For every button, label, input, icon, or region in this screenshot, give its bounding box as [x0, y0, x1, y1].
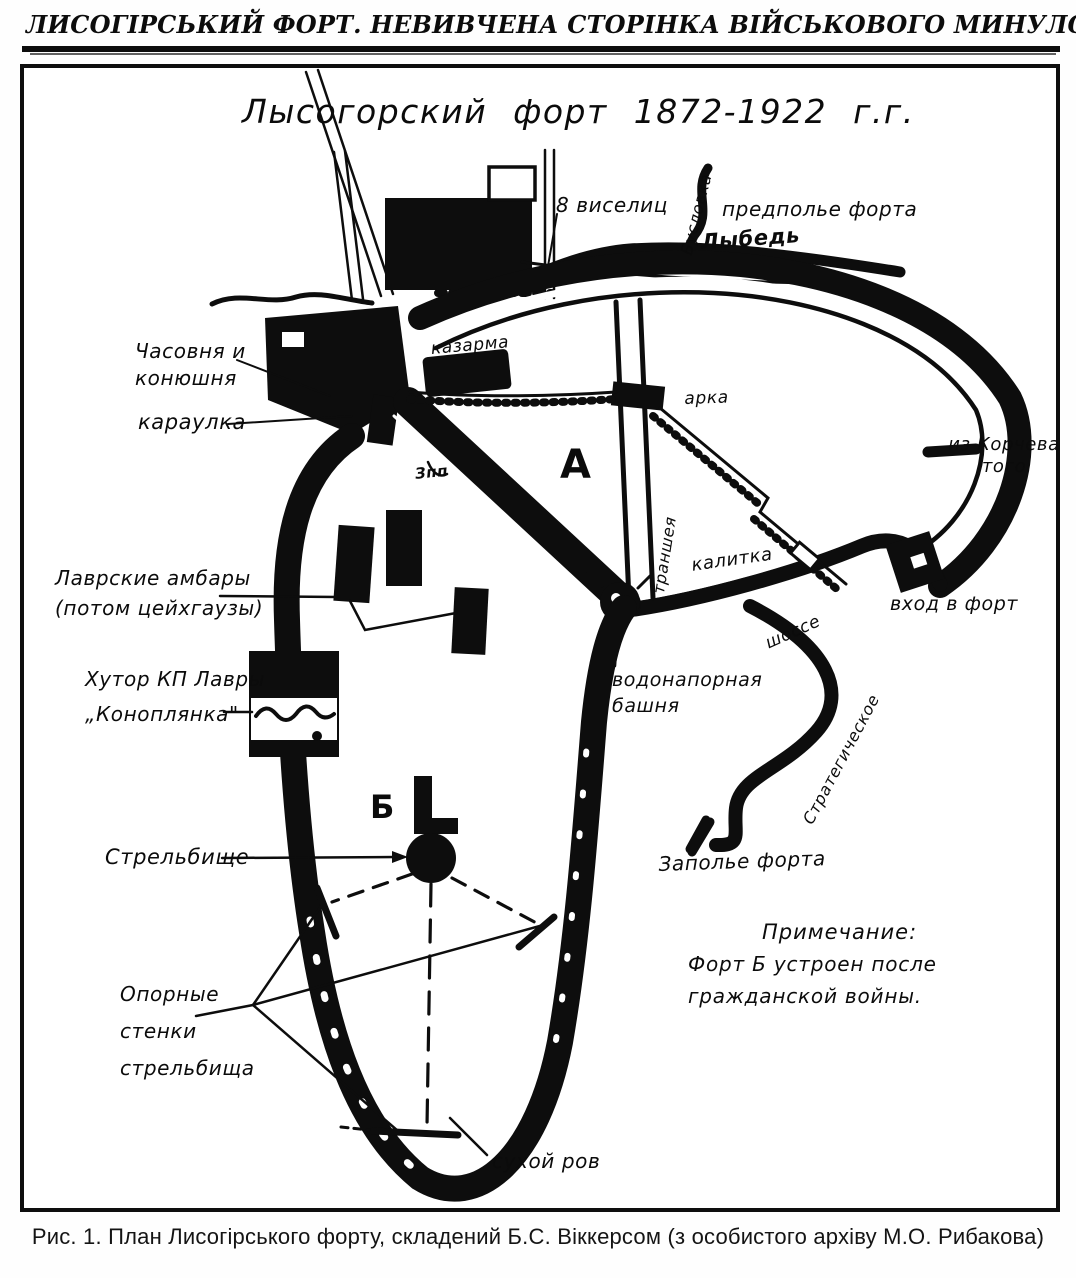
- label-sector-b: Б: [370, 786, 395, 829]
- label-sector-a: А: [560, 438, 592, 492]
- label-arch: арка: [684, 386, 729, 410]
- label-zpp: Зпп: [414, 461, 449, 485]
- label-fort-entrance: вход в форт: [890, 592, 1018, 618]
- label-water-tower: водонапорная башня: [612, 668, 762, 719]
- label-shooting-range: Стрельбище: [105, 843, 249, 871]
- label-lavra-barns: Лаврские амбары (потом цейхгаузы): [55, 563, 263, 623]
- figure-caption: Рис. 1. План Лисогірського форту, складе…: [0, 1224, 1076, 1250]
- label-dry-moat: сухой ров: [492, 1148, 600, 1175]
- map-title: Лысогорский форт 1872-1922 г.г.: [242, 90, 915, 135]
- label-guardhouse: караулка: [138, 408, 246, 436]
- label-farmstead: Хутор КП Лавры „Коноплянка": [85, 662, 265, 732]
- label-korchevatoe: из Корчева того: [948, 434, 1060, 477]
- header-rule-thin: [30, 53, 1056, 55]
- label-gallows: 8 виселиц: [556, 192, 668, 219]
- label-forefield: предполье форта: [722, 196, 917, 223]
- label-support-walls: Опорные стенки стрельбища: [120, 976, 255, 1087]
- header-rule: [22, 46, 1060, 52]
- map-note: Примечание: Форт Б устроен после граждан…: [688, 920, 978, 1012]
- label-chapel: Часовня и конюшня: [135, 338, 246, 392]
- page-header: ЛИСОГІРСЬКИЙ ФОРТ. НЕВИВЧЕНА СТОРІНКА ВІ…: [26, 10, 1054, 39]
- map-note-title: Примечание:: [762, 920, 978, 944]
- page-header-title: ЛИСОГІРСЬКИЙ ФОРТ. НЕВИВЧЕНА СТОРІНКА ВІ…: [26, 10, 1076, 39]
- scanned-page: ЛИСОГІРСЬКИЙ ФОРТ. НЕВИВЧЕНА СТОРІНКА ВІ…: [0, 0, 1076, 1278]
- map-note-body: Форт Б устроен после гражданской войны.: [688, 948, 978, 1012]
